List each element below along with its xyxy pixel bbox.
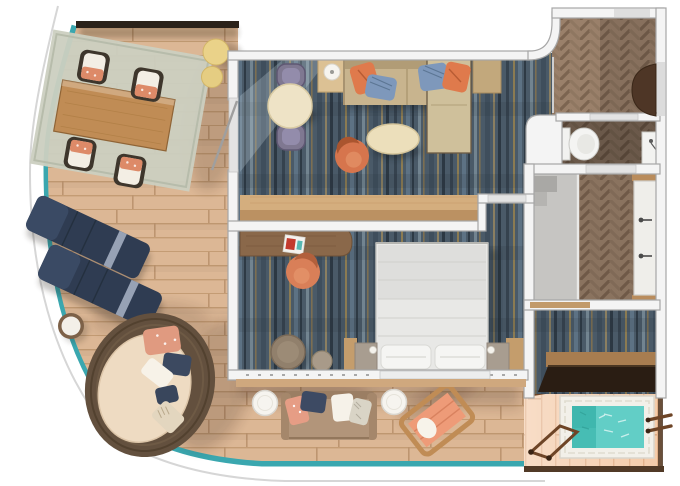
double-bed xyxy=(376,243,488,371)
dark-console xyxy=(538,366,658,392)
writing-desk xyxy=(240,228,352,256)
bath-sill xyxy=(530,302,590,308)
balcony-top-rail xyxy=(76,21,239,28)
wc-bath-door xyxy=(586,165,636,173)
stool xyxy=(312,351,332,371)
outdoor-dining-chair xyxy=(63,136,98,173)
magazine xyxy=(283,235,305,255)
living-bedroom-door xyxy=(488,195,526,202)
left-wall-lower xyxy=(228,170,238,380)
outdoor-loveseat xyxy=(281,390,377,440)
living-top-wall xyxy=(228,51,530,60)
living-room xyxy=(240,57,501,222)
outdoor-side-table xyxy=(382,390,407,415)
terrace-sill xyxy=(236,379,526,387)
hall-wc-door xyxy=(590,114,638,120)
bedside-lamp xyxy=(487,346,494,353)
whirlpool-hot-tub xyxy=(560,396,654,458)
console-wood-edge xyxy=(546,352,658,367)
outdoor-dining-chair xyxy=(76,49,111,86)
oval-coffee-table xyxy=(367,124,419,154)
nightstand xyxy=(487,343,509,370)
outdoor-dining-chair xyxy=(130,66,165,103)
outdoor-dining-chair xyxy=(112,153,147,190)
bedroom-glass-door xyxy=(380,371,490,379)
entry-recess xyxy=(614,9,650,17)
lamp-side-table xyxy=(318,58,346,92)
living-bedroom-wall xyxy=(228,221,484,231)
sofa-side-table xyxy=(473,59,501,93)
floor-plan-canvas xyxy=(0,0,680,486)
nightstand xyxy=(355,343,377,370)
bar-counter xyxy=(240,195,482,222)
hot-tub-deck xyxy=(524,387,671,472)
dressing-area xyxy=(538,352,658,392)
indoor-dining-table xyxy=(268,84,312,128)
bedside-lamp xyxy=(369,346,376,353)
wc-corner-wall xyxy=(526,115,562,171)
entry-door-recess xyxy=(657,62,665,116)
outdoor-side-table xyxy=(253,391,278,416)
